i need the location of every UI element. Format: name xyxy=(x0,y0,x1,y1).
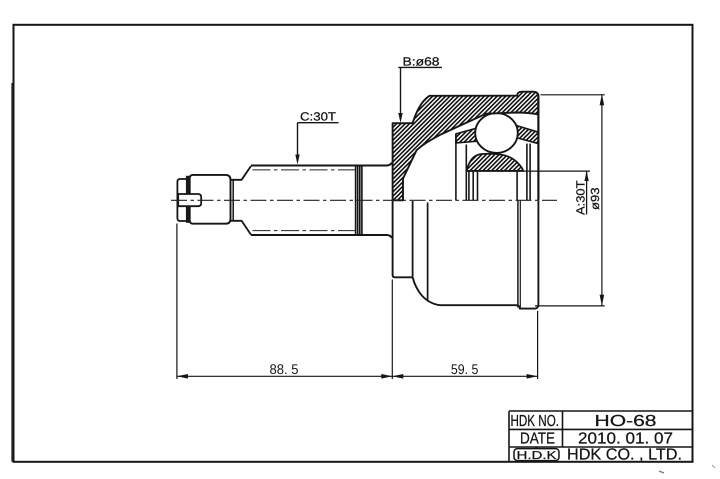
svg-text:ø93: ø93 xyxy=(588,187,602,210)
svg-text:HDK CO. , LTD.: HDK CO. , LTD. xyxy=(567,446,682,463)
svg-text:C:30T: C:30T xyxy=(300,110,336,124)
svg-text:59. 5: 59. 5 xyxy=(451,361,479,377)
svg-text:A:30T: A:30T xyxy=(574,181,588,216)
svg-text:H.D.K: H.D.K xyxy=(517,450,557,462)
svg-text:HO-68: HO-68 xyxy=(595,413,657,430)
svg-text:DATE: DATE xyxy=(520,431,555,448)
svg-text:B:ø68: B:ø68 xyxy=(403,55,441,69)
svg-text:HDK NO.: HDK NO. xyxy=(511,413,560,430)
svg-text:2010. 01. 07: 2010. 01. 07 xyxy=(578,431,673,448)
svg-text:88. 5: 88. 5 xyxy=(270,361,299,377)
